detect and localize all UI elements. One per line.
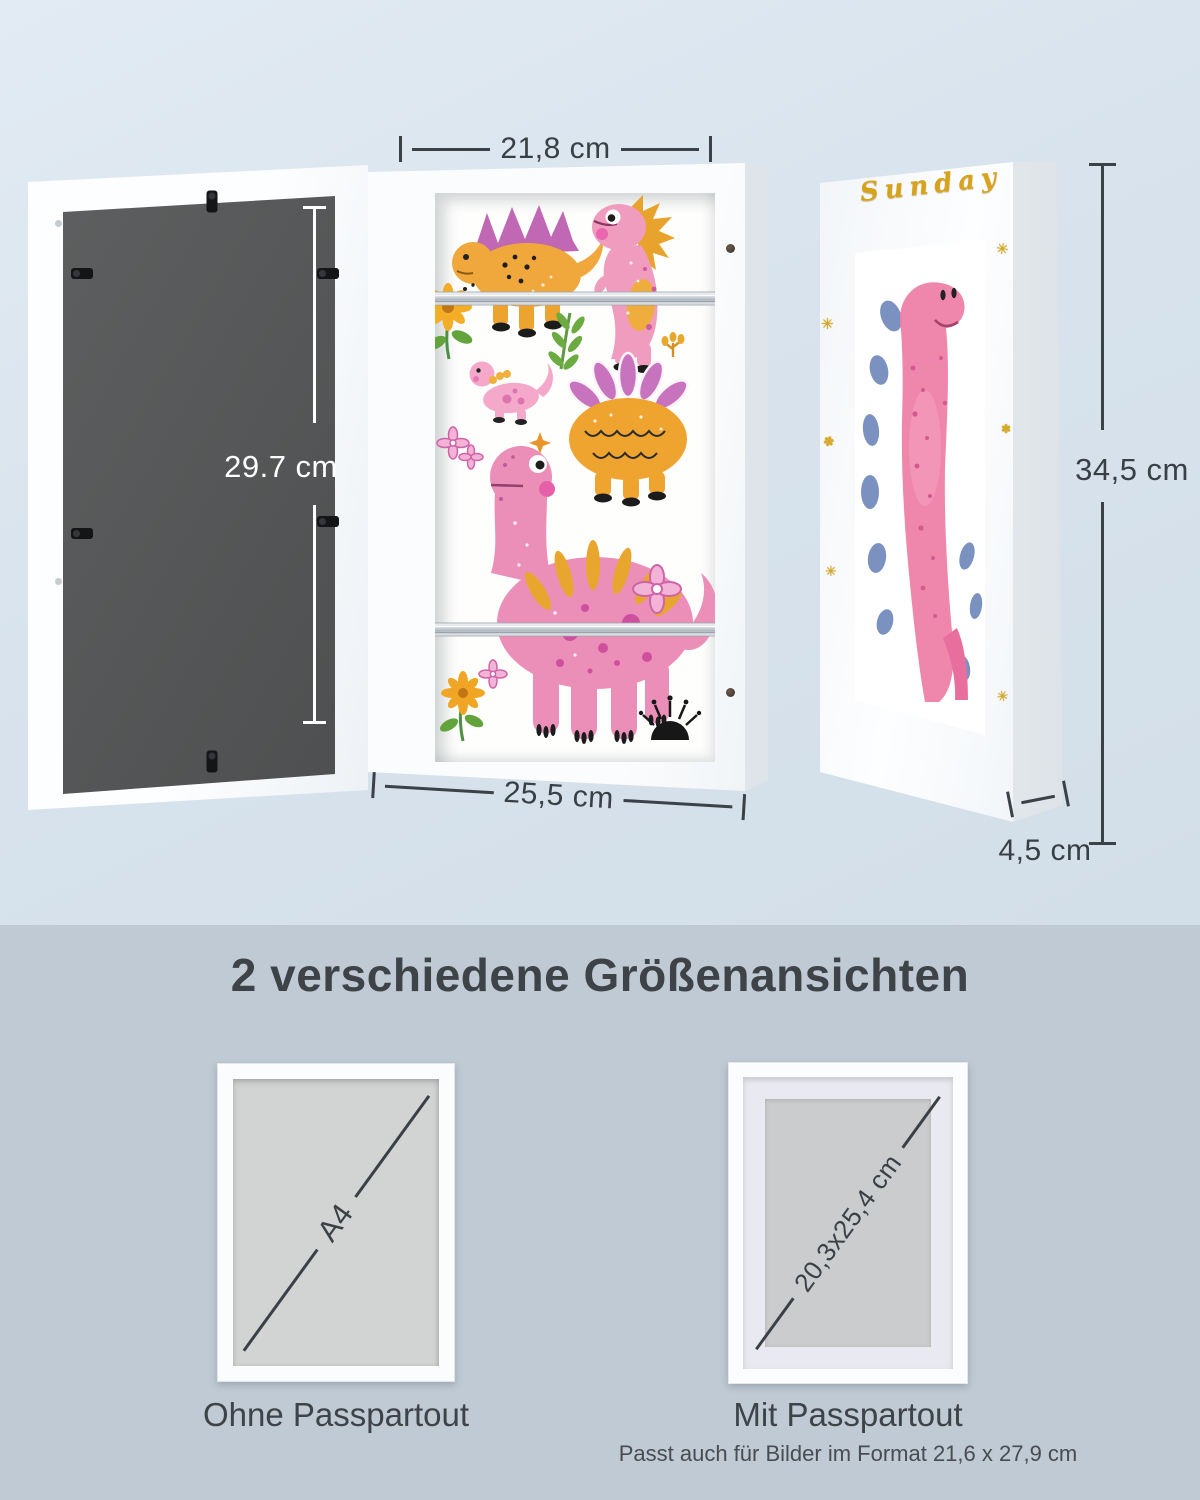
flower-yellow-bottom (438, 671, 485, 741)
diagonal-line (354, 1094, 430, 1197)
frame-diagram-a4: A4 (217, 1063, 455, 1382)
dino-baby (470, 362, 553, 426)
kids-dinosaur-artwork-svg (435, 193, 715, 762)
dim-back-height-tick (303, 721, 326, 724)
frame-side-view: Sunday ✳ ✽ ✳ ✳ ✽ ✳ (815, 150, 1075, 840)
dim-door-width-label: 21,8 cm (500, 132, 610, 166)
star-icon: ✽ (1001, 422, 1011, 436)
mounting-clip-icon (317, 268, 339, 279)
dim-side-height-line (1101, 502, 1104, 842)
dim-tick (709, 136, 712, 162)
mounting-clip-icon (207, 191, 218, 213)
mounting-clip-icon (71, 528, 93, 539)
screw-icon (726, 244, 735, 253)
dim-tick (371, 772, 376, 798)
dim-side-height-label: 34,5 cm (1047, 452, 1200, 488)
dim-line (624, 798, 733, 807)
frame-diagram-passepartout: 20,3x25,4 cm (728, 1062, 968, 1384)
size-label-a4: A4 (311, 1197, 361, 1247)
dim-depth-label: 4,5 cm (985, 834, 1105, 868)
dim-line (621, 148, 699, 151)
dim-line (385, 784, 494, 793)
dim-back-height-line (313, 505, 316, 721)
flowers-pink-pair (437, 427, 483, 469)
passepartout-note: Passt auch für Bilder im Format 21,6 x 2… (598, 1441, 1098, 1467)
frame-artwork-area (435, 193, 715, 762)
caption-without-passepartout: Ohne Passpartout (166, 1396, 506, 1434)
dim-tick (399, 136, 402, 162)
frame-diagram-a4-inner: A4 (233, 1079, 439, 1366)
star-icon: ✳ (825, 564, 837, 580)
frame-hole-dot (55, 578, 62, 585)
watercolor-dino-art-svg (855, 238, 985, 738)
size-section-title: 2 verschiedene Größenansichten (0, 948, 1200, 1002)
diagonal-line (242, 1248, 318, 1351)
dim-line (412, 148, 490, 151)
dino-orange-stego2 (564, 353, 692, 507)
dim-back-height-line (313, 209, 316, 423)
dim-side-height-line (1101, 166, 1104, 430)
mounting-clip-icon (317, 516, 339, 527)
retainer-bar-icon (435, 292, 715, 305)
dim-outer-width-label: 25,5 cm (503, 776, 615, 816)
dim-door-width: 21,8 cm (399, 132, 712, 166)
star-icon: ✳ (821, 315, 834, 333)
retainer-bar-icon (435, 623, 715, 636)
dino-watercolor-body (900, 282, 968, 702)
product-infographic: 29.7 cm (0, 0, 1200, 1500)
passepartout-mat: 20,3x25,4 cm (743, 1077, 953, 1369)
star-icon: ✳ (995, 239, 1011, 259)
frame-front-view (368, 160, 768, 795)
mounting-clip-icon (71, 268, 93, 279)
caption-with-passepartout: Mit Passpartout (678, 1396, 1018, 1434)
dim-line (1021, 794, 1055, 803)
dino-pink-mane (592, 195, 675, 373)
flower-pink-bottom (479, 660, 507, 688)
dim-back-height-label: 29.7 cm (206, 449, 356, 485)
diagonal-size-indicator: A4 (233, 1085, 439, 1360)
mounting-clip-icon (207, 751, 218, 773)
frame-hole-dot (55, 220, 62, 227)
sprig-yellow-small (662, 332, 685, 357)
screw-icon (726, 688, 735, 697)
